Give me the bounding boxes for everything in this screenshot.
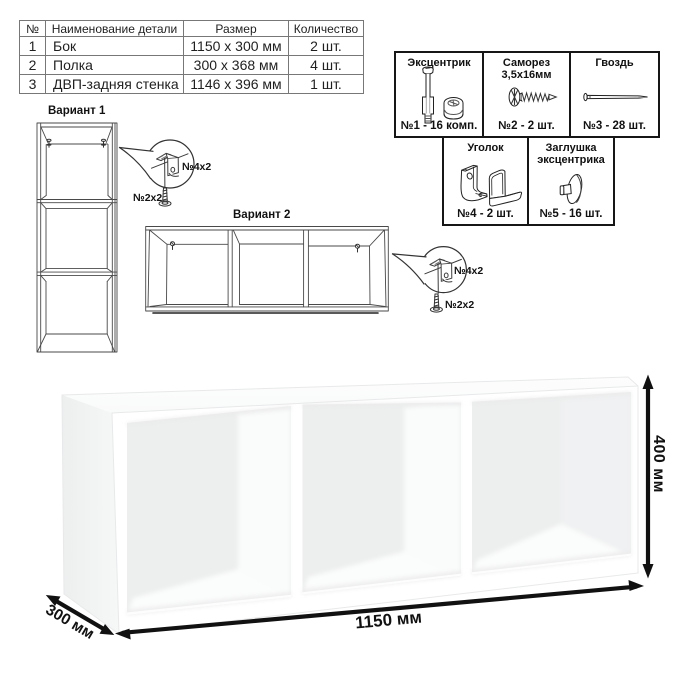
svg-text:№2х2: №2х2: [445, 299, 474, 311]
svg-text:№4х2: №4х2: [454, 265, 483, 277]
svg-text:№2х2: №2х2: [133, 192, 162, 204]
svg-text:400 мм: 400 мм: [650, 435, 667, 493]
svg-text:№4х2: №4х2: [182, 161, 211, 173]
